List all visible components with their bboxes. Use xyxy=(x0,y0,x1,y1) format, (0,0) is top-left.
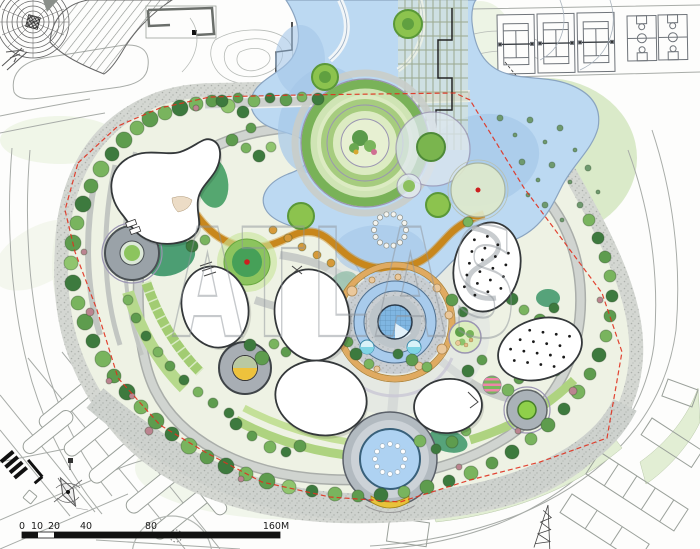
leaf-plaza xyxy=(50,0,172,74)
tree xyxy=(179,375,189,385)
tree xyxy=(431,444,441,454)
tree xyxy=(414,435,426,447)
tree xyxy=(446,436,458,448)
canopy-dot xyxy=(536,352,539,355)
tree xyxy=(569,387,577,395)
canopy-dot xyxy=(562,356,565,359)
tree xyxy=(193,105,199,111)
canopy-dot xyxy=(542,331,545,334)
tree xyxy=(208,398,218,408)
canopy-dot xyxy=(539,363,542,366)
tree xyxy=(525,433,537,445)
tree xyxy=(106,378,112,384)
dot xyxy=(375,449,380,454)
tree xyxy=(86,334,100,348)
tree xyxy=(248,95,260,107)
canopy-dot xyxy=(528,329,531,332)
tree xyxy=(264,441,276,453)
tree xyxy=(241,143,251,153)
tree xyxy=(456,464,462,470)
red-dot xyxy=(476,188,481,193)
tree xyxy=(294,440,306,452)
scale-label: 160M xyxy=(263,521,289,532)
dot xyxy=(380,444,385,449)
tree xyxy=(266,142,276,152)
tree xyxy=(181,438,197,454)
tree xyxy=(486,457,498,469)
tree xyxy=(557,125,563,131)
tree xyxy=(237,106,249,118)
tree xyxy=(542,202,548,208)
canopy-dot xyxy=(545,342,548,345)
tree xyxy=(464,466,478,480)
canopy-dot xyxy=(526,361,529,364)
tree xyxy=(352,490,364,502)
tree xyxy=(597,297,603,303)
tree xyxy=(541,418,555,432)
tree xyxy=(105,147,119,161)
tree xyxy=(584,368,596,380)
tree xyxy=(604,270,616,282)
dot xyxy=(373,457,378,462)
tree xyxy=(129,393,135,399)
watermark: ATLAS xyxy=(172,198,524,372)
canopy-dot xyxy=(553,365,556,368)
tree xyxy=(592,232,604,244)
canopy-dot xyxy=(568,335,571,338)
tree xyxy=(297,92,307,102)
tree xyxy=(577,202,583,208)
tree xyxy=(549,303,559,313)
tree xyxy=(599,251,611,263)
tree xyxy=(84,179,98,193)
tree xyxy=(64,256,78,270)
tree xyxy=(502,384,514,396)
tree xyxy=(71,296,85,310)
tree xyxy=(95,351,111,367)
tree xyxy=(543,140,547,144)
tree xyxy=(513,133,517,137)
tree xyxy=(536,178,540,182)
dot xyxy=(380,470,385,475)
site-plan-svg: ATLAS 0 10 20 40 80 160M xyxy=(0,0,700,549)
scale-label: 0 xyxy=(19,521,25,532)
tree xyxy=(443,475,455,487)
tree xyxy=(519,159,525,165)
canopy-dot xyxy=(555,333,558,336)
tree xyxy=(134,400,148,414)
tree xyxy=(131,313,141,323)
tree xyxy=(596,190,600,194)
tree xyxy=(583,214,595,226)
canopy-dot xyxy=(532,340,535,343)
tree xyxy=(93,161,109,177)
tree xyxy=(145,427,153,435)
tennis-court xyxy=(497,14,535,74)
tree-circle xyxy=(417,133,445,161)
tree xyxy=(230,418,242,430)
tree xyxy=(306,485,318,497)
tree xyxy=(568,180,572,184)
canopy-dot xyxy=(549,354,552,357)
tree xyxy=(374,488,388,502)
tree xyxy=(604,310,616,322)
dot xyxy=(388,442,393,447)
tree xyxy=(328,487,342,501)
tree xyxy=(238,476,244,482)
tree xyxy=(142,111,158,127)
tree xyxy=(281,447,291,457)
tree xyxy=(600,330,612,342)
tree xyxy=(246,123,256,133)
tree xyxy=(226,134,238,146)
tree xyxy=(224,408,234,418)
tree xyxy=(75,196,91,212)
tree xyxy=(141,331,151,341)
scale-label: 20 xyxy=(48,521,60,532)
tree xyxy=(527,117,533,123)
tree xyxy=(172,100,188,116)
tree xyxy=(200,450,214,464)
tree xyxy=(65,275,81,291)
tree xyxy=(505,445,519,459)
lattice-tower xyxy=(534,504,556,549)
tree xyxy=(573,148,577,152)
tree xyxy=(165,427,179,441)
tree xyxy=(81,249,87,255)
basketball-court xyxy=(658,14,688,59)
dot xyxy=(375,464,380,469)
context-building xyxy=(146,6,216,38)
tree xyxy=(253,150,265,162)
tennis-court xyxy=(537,13,575,73)
scale-label: 10 xyxy=(31,521,43,532)
canopy-dot xyxy=(559,344,562,347)
tennis-court xyxy=(577,12,615,72)
dot xyxy=(388,472,393,477)
tree xyxy=(116,132,132,148)
tree xyxy=(398,486,410,498)
verge-strip xyxy=(640,388,700,484)
scale-label: 80 xyxy=(145,521,157,532)
tree xyxy=(153,347,163,357)
dot xyxy=(403,457,408,462)
dot xyxy=(401,449,406,454)
tree xyxy=(585,165,591,171)
tree xyxy=(606,290,618,302)
site-plan: ATLAS 0 10 20 40 80 160M xyxy=(0,0,700,549)
tree xyxy=(130,121,144,135)
tree xyxy=(233,93,243,103)
scale-label: 40 xyxy=(80,521,92,532)
dot xyxy=(401,464,406,469)
tree xyxy=(259,473,275,489)
tree xyxy=(193,387,203,397)
tree xyxy=(560,218,564,222)
tree xyxy=(558,403,570,415)
tree xyxy=(70,216,84,230)
tree xyxy=(515,428,521,434)
tree xyxy=(265,93,275,103)
tree xyxy=(123,295,133,305)
tree xyxy=(592,348,606,362)
tree xyxy=(549,162,555,168)
tree xyxy=(497,115,503,121)
scale-bar: 0 10 20 40 80 160M xyxy=(19,521,289,538)
dot xyxy=(395,470,400,475)
basketball-court xyxy=(627,15,657,60)
striped-circle xyxy=(483,376,501,394)
tree xyxy=(247,431,257,441)
dot xyxy=(395,444,400,449)
tree xyxy=(86,308,94,316)
